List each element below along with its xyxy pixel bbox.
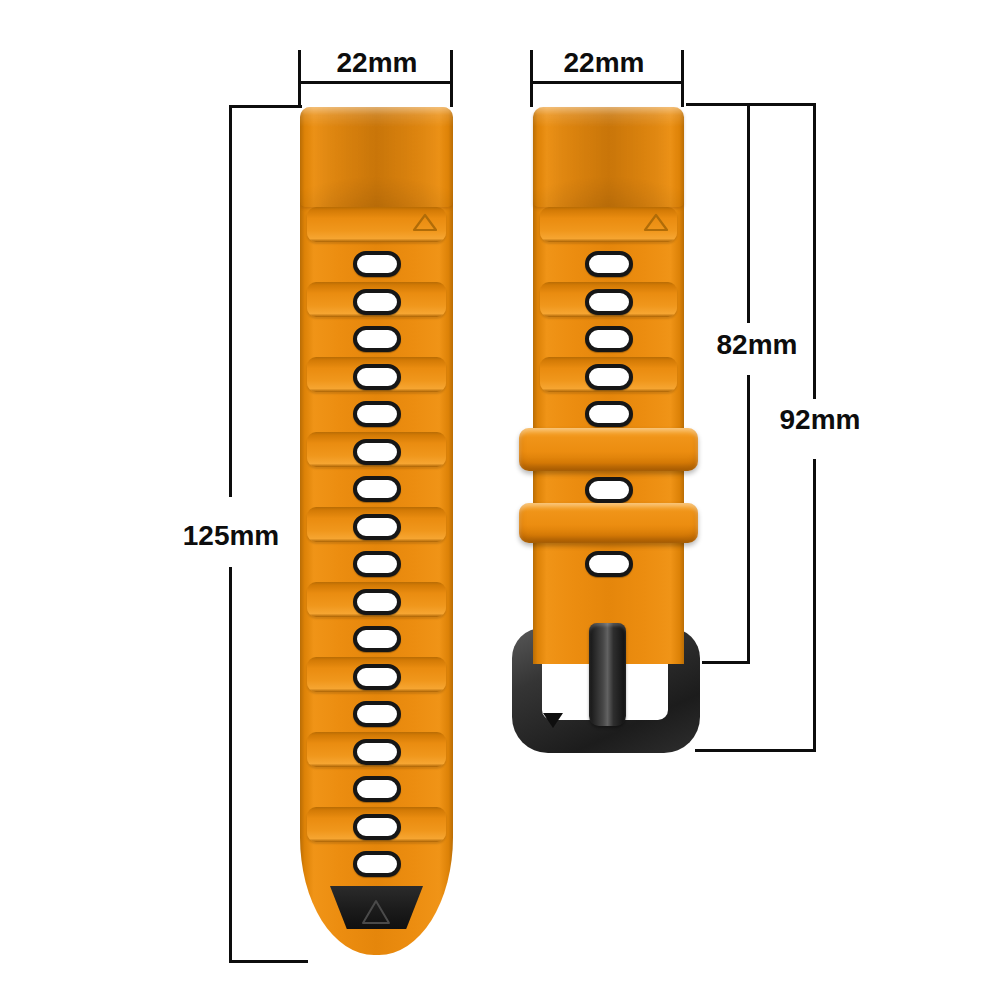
dim-label-short-strap-width: 22mm: [564, 49, 645, 77]
strap-hole: [585, 477, 633, 503]
strap-hole: [353, 739, 401, 765]
strap-hole: [353, 814, 401, 840]
strap-hole: [353, 476, 401, 502]
strap-hole: [353, 851, 401, 877]
strap-hole: [353, 776, 401, 802]
dim-line-long-strap-width: [299, 81, 453, 84]
strap-hole: [353, 589, 401, 615]
strap-hole: [353, 626, 401, 652]
dim-line-top-reference: [686, 103, 816, 106]
dim-label-82mm: 82mm: [717, 331, 798, 359]
dim-label-92mm: 92mm: [780, 406, 861, 434]
triangle-mark-icon: [412, 213, 438, 232]
short-strap: [533, 107, 684, 664]
strap-hole: [353, 401, 401, 427]
dim-tick: [530, 50, 533, 107]
dim-tick: [681, 50, 684, 107]
strap-hole: [353, 326, 401, 352]
dim-tick: [695, 749, 816, 752]
dim-line-long-strap-length: [229, 567, 232, 963]
dim-line-long-strap-length: [229, 105, 232, 497]
strap-hole: [585, 326, 633, 352]
buckle-triangle-mark-icon: [543, 713, 563, 728]
strap-hole: [585, 364, 633, 390]
strap-band: [307, 207, 446, 242]
dim-tick: [702, 661, 750, 664]
long-strap: [300, 107, 453, 955]
dim-tick: [230, 105, 302, 108]
strap-hole: [353, 514, 401, 540]
strap-hole: [353, 289, 401, 315]
strap-hole: [585, 551, 633, 577]
strap-black-tip: [327, 886, 426, 929]
strap-hole: [585, 289, 633, 315]
dim-line-short-strap-width: [531, 81, 684, 84]
dim-tick: [450, 50, 453, 107]
strap-hole: [353, 664, 401, 690]
dim-line-82mm: [747, 375, 750, 664]
dim-line-92mm: [813, 459, 816, 752]
dim-label-long-strap-width: 22mm: [337, 49, 418, 77]
strap-band: [540, 207, 677, 242]
triangle-mark-icon: [361, 899, 391, 925]
strap-hole: [353, 251, 401, 277]
triangle-mark-icon: [643, 213, 669, 232]
strap-hole: [585, 401, 633, 427]
dim-tick: [230, 960, 308, 963]
strap-hole: [353, 551, 401, 577]
strap-top-block: [300, 107, 453, 207]
dim-tick: [298, 50, 301, 107]
dim-line-92mm: [813, 103, 816, 399]
strap-hole: [353, 439, 401, 465]
dim-line-82mm: [747, 103, 750, 323]
buckle-prong: [589, 623, 626, 726]
product-size-diagram: 22mm 22mm 125mm 82mm 92mm: [0, 0, 1000, 1000]
strap-keeper-2: [519, 503, 698, 543]
strap-keeper-1: [519, 428, 698, 471]
strap-top-block: [533, 107, 684, 207]
strap-hole: [353, 701, 401, 727]
strap-hole: [353, 364, 401, 390]
strap-hole: [585, 251, 633, 277]
dim-label-long-strap-length: 125mm: [183, 522, 280, 550]
